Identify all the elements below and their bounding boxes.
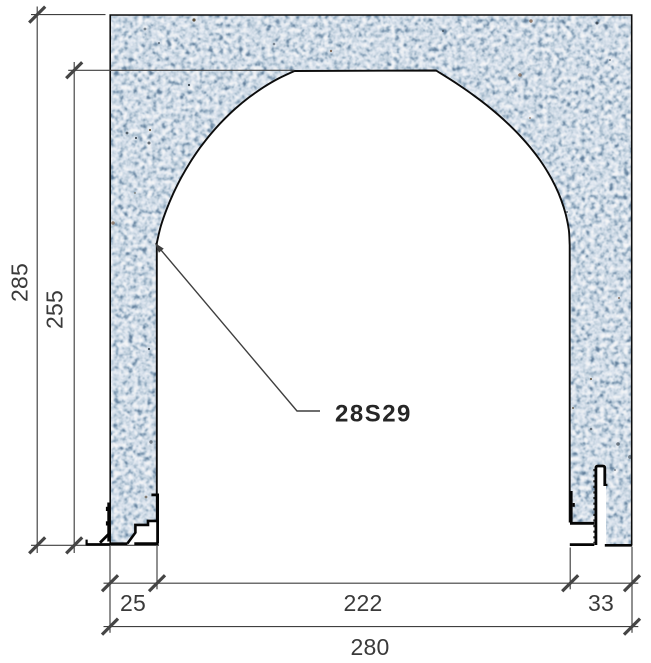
svg-text:222: 222 (344, 590, 383, 616)
svg-text:33: 33 (588, 590, 614, 616)
svg-text:280: 280 (351, 634, 390, 660)
svg-text:285: 285 (7, 263, 33, 302)
svg-text:28S29: 28S29 (335, 401, 412, 428)
svg-text:255: 255 (42, 290, 68, 329)
svg-text:25: 25 (120, 590, 146, 616)
